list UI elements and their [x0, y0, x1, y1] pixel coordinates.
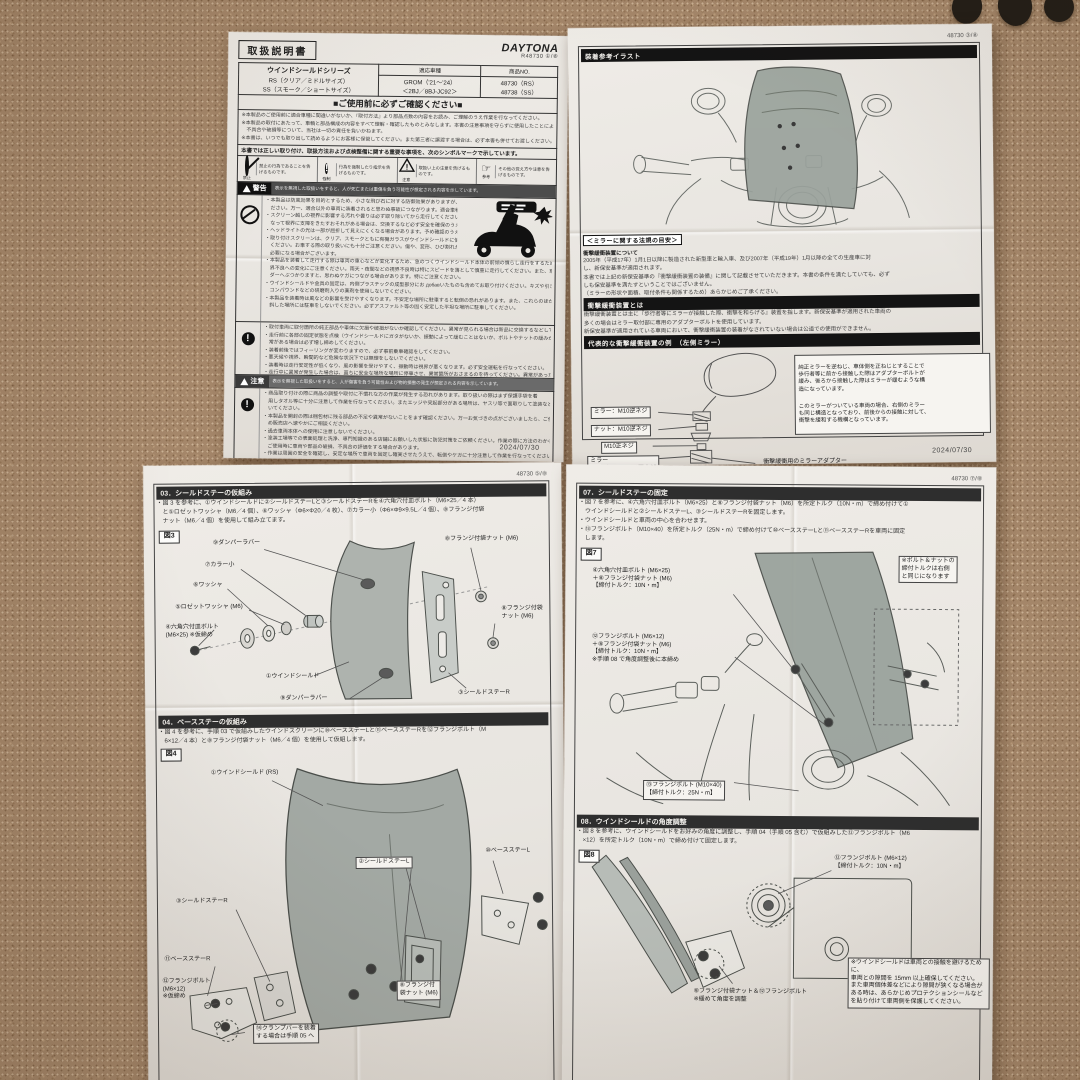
legend-caption: 注意 — [397, 177, 415, 183]
part-label: ③シールドステーR — [458, 690, 510, 698]
legend-caution: !注意 取扱い上の注意を告げるものです。 — [396, 158, 476, 184]
legend-text: その他の覚え方や注意を告げるものです。 — [495, 165, 556, 179]
part-label: ⑫フランジボルト (M6×12) ※仮締め — [163, 978, 211, 1001]
legend-reference: ☞参考 その他の覚え方や注意を告げるものです。 — [476, 159, 556, 185]
legend-text: 取扱い上の注意を告げるものです。 — [415, 164, 476, 178]
part-label: ⑪ベースステーR — [164, 956, 210, 964]
no-header: 商品NO. — [481, 66, 558, 78]
part-label: ①ウインドシールド — [266, 673, 319, 681]
part-label: ⑥ワッシャ — [193, 582, 222, 590]
figure-8: 図8 — [575, 846, 978, 1017]
no-ss: 48738（SS） — [484, 87, 554, 97]
page-number: 48730 ⑤/⑧ — [516, 470, 547, 477]
warning-triangle-icon: ! — [398, 158, 414, 172]
part-label: ⑧フランジ付袋ナット (M6) — [445, 536, 518, 544]
dark-object — [1044, 0, 1074, 22]
mandatory-block: ! ・取付車両に取付箇所の純正部品や車体に欠損や破損がないか確認してください。異… — [234, 322, 555, 379]
section-07-text: ・図 7 を参考に、④六角穴付皿ボルト（M6×25）と⑧フランジ付袋ナット（M6… — [579, 499, 981, 547]
part-label: ⑩ベースステーL — [485, 847, 529, 855]
motorcycle-illustration — [581, 58, 979, 230]
figure-3: 図3 — [157, 523, 549, 712]
mandatory-text: ・取付車両に取付箇所の純正部品や車体に欠損や破損がないか確認してください。異常が… — [263, 324, 551, 378]
legend-caption: 参考 — [477, 175, 495, 179]
product-ss: SS（スモーク／ショートサイズ） — [242, 84, 375, 95]
mirror-note-2: このミラーがついている車両の場合、右側のミラー も同じ構造となっており、前後から… — [799, 402, 987, 425]
legend-caption: 強制 — [318, 176, 336, 182]
figure-4-tag: 図4 — [161, 749, 182, 762]
warning-triangle-icon — [240, 378, 248, 385]
torque-label: ⑫フランジボルト (M6×12) ＋⑧フランジ付袋ナット (M6) 【締付トルク… — [592, 634, 679, 665]
prohibition-icon — [239, 204, 261, 226]
clearance-note-box: ※ウインドシールドは車両との接触を避けるために、 車両との隙間を 15mm 以上… — [848, 957, 990, 1009]
figure-7-tag: 図7 — [581, 548, 602, 561]
svg-text:!: ! — [405, 163, 408, 172]
scooter-illustration — [460, 200, 553, 259]
mirror-note-box: 純正ミラーを逆ねじ、車体側を正ねじとすることで 歩行者等に前から接触した際はアダ… — [794, 353, 991, 435]
manual-page-4: 48730 ⑦/⑧ 07．シールドステーの固定 ・図 7 を参考に、④六角穴付皿… — [562, 465, 997, 1080]
doc-title: 取扱説明書 — [238, 40, 316, 60]
warning-triangle-icon — [243, 185, 251, 192]
figure-4: 図4 — [159, 743, 552, 1048]
prohibition-icon — [245, 155, 249, 176]
exclamation-icon: ! — [325, 163, 328, 174]
part-label: ⑦カラー小 — [205, 562, 234, 570]
torque-label: ⑧フランジ付袋ナット＆⑫フランジボルト ※緩めて角度を調整 — [694, 988, 807, 1004]
manual-page-3: 48730 ⑤/⑧ 03．シールドステーの仮組み ・図 3 を参考に、①ウインド… — [143, 462, 567, 1080]
part-label: ④六角穴付皿ボルト (M6×25) ※仮締め — [166, 624, 220, 639]
manual-page-1: 取扱説明書 DAYTONA R48730 ①/⑧ ウインドシールドシリーズ RS… — [223, 32, 568, 462]
part-label: ⑧フランジ付 袋ナット (M6) — [397, 980, 441, 1000]
mirror-diagram: ミラー：M10逆ネジ ナット：M10逆ネジ M10正ネジ ミラー アダプター：M… — [584, 345, 981, 466]
dark-object — [995, 0, 1034, 28]
date-stamp: 2024/07/30 — [932, 447, 972, 454]
page-number: 48730 ③/⑧ — [947, 32, 978, 39]
part-label: ⑭クランプバーを装着 する場合は手順 05 へ — [253, 1023, 319, 1043]
photo-of-instruction-manual: 取扱説明書 DAYTONA R48730 ①/⑧ ウインドシールドシリーズ RS… — [0, 0, 1080, 1080]
dark-object — [949, 0, 985, 27]
date-stamp: 2024/07/30 — [499, 444, 539, 451]
symbol-legend: 禁止 禁止の行為であることを告げるものです。 !強制 行為を強制したり指示を告げ… — [237, 156, 557, 186]
part-label: ⑧フランジ付袋 ナット (M6) — [501, 605, 543, 620]
warning-block: ・本製品は防風効果を目的とするため、小さな飛び石に対する防御効果がありますが、そ… — [235, 195, 557, 326]
legal-paragraph: 2005年（平成17年）1月1日以降に製造された新型車と輸入車、及び2007年（… — [583, 253, 979, 298]
page-number: R48730 ①/⑧ — [501, 54, 558, 60]
brand-logo: DAYTONA R48730 ①/⑧ — [501, 43, 558, 60]
part-label: ⑨ダンパーラバー — [213, 540, 260, 548]
torque-label: ④六角穴付皿ボルト (M6×25) ＋⑧フランジ付袋ナット (M6) 【締付トル… — [592, 568, 672, 591]
part-label: ②シールドステーL — [356, 857, 413, 869]
legend-mandatory: !強制 行為を強制したり指示を告げるものです。 — [317, 157, 397, 183]
torque-note-box: ※ボルト＆ナットの 締付トルクは右側 と同じになります — [898, 556, 957, 584]
legal-guideline-title: ＜ミラーに関する法規の目安＞ — [583, 234, 682, 246]
fit-code: ＜2BJ／8BJ-JC92＞ — [382, 86, 477, 96]
torque-label: ⑫フランジボルト (M6×12) 【締付トルク：10N・m】 — [834, 855, 906, 871]
page-number: 48730 ⑦/⑧ — [951, 475, 982, 482]
section-03-text: ・図 3 を参考に、①ウインドシールドに②シールドステーLと③シールドステーRを… — [156, 496, 546, 526]
mirror-label: ミラー：M10逆ネジ — [591, 406, 651, 418]
exclamation-icon: ! — [241, 332, 254, 345]
mirror-label: ナット：M10逆ネジ — [591, 424, 651, 436]
part-label: ①ウインドシールド (RS) — [211, 770, 278, 778]
legend-text: 禁止の行為であることを告げるものです。 — [256, 162, 317, 176]
figure-7: 図7 — [577, 544, 981, 815]
part-label: ③シールドステーR — [176, 898, 228, 906]
figure-8-tag: 図8 — [579, 850, 600, 863]
manual-page-2: 48730 ③/⑧ 装着参考イラスト — [568, 24, 997, 466]
legend-text: 行為を強制したり指示を告げるものです。 — [336, 163, 397, 177]
intro-notes: ※本製品のご使用前に適合車種に間違いがないか、『取付方法』より部品点数の内容をお… — [237, 110, 557, 149]
part-label: ⑨ダンパーラバー — [280, 695, 327, 703]
mirror-label: M10正ネジ — [601, 442, 637, 454]
warning-title: 警告 — [253, 183, 267, 193]
figure-3-tag: 図3 — [159, 531, 180, 544]
mirror-note-1: 純正ミラーを逆ねじ、車体側を正ねじとすることで 歩行者等に前から接触した際はアダ… — [798, 363, 986, 394]
caution-title: 注意 — [250, 376, 264, 386]
exclamation-icon: ! — [240, 398, 253, 411]
product-table: ウインドシールドシリーズ RS（クリア／ミドルサイズ） SS（スモーク／ショート… — [238, 62, 558, 99]
part-label: ⑤ロゼットワッシャ (M6) — [175, 604, 242, 612]
legend-prohibit: 禁止 禁止の行為であることを告げるものです。 — [238, 156, 317, 182]
torque-label: ⑬フランジボルト (M10×40) 【締付トルク：25N・m】 — [643, 780, 725, 800]
